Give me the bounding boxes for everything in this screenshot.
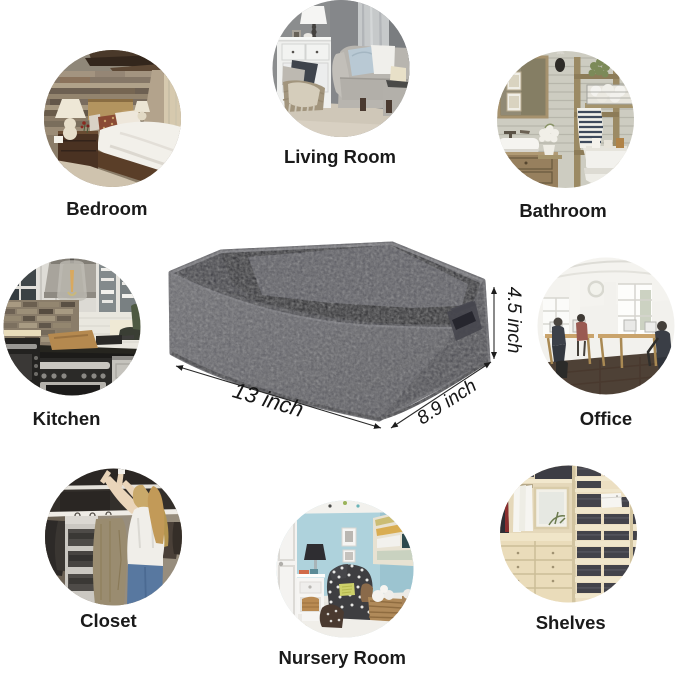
svg-text:Bedroom: Bedroom (66, 198, 147, 219)
svg-text:Shelves: Shelves (536, 612, 606, 633)
svg-text:Living Room: Living Room (284, 146, 396, 167)
svg-text:Nursery Room: Nursery Room (278, 647, 405, 668)
svg-text:Kitchen: Kitchen (33, 408, 101, 429)
svg-text:Office: Office (580, 408, 632, 429)
svg-text:Closet: Closet (80, 610, 137, 631)
svg-text:4.5 inch: 4.5 inch (503, 287, 524, 354)
svg-text:Bathroom: Bathroom (519, 200, 606, 221)
